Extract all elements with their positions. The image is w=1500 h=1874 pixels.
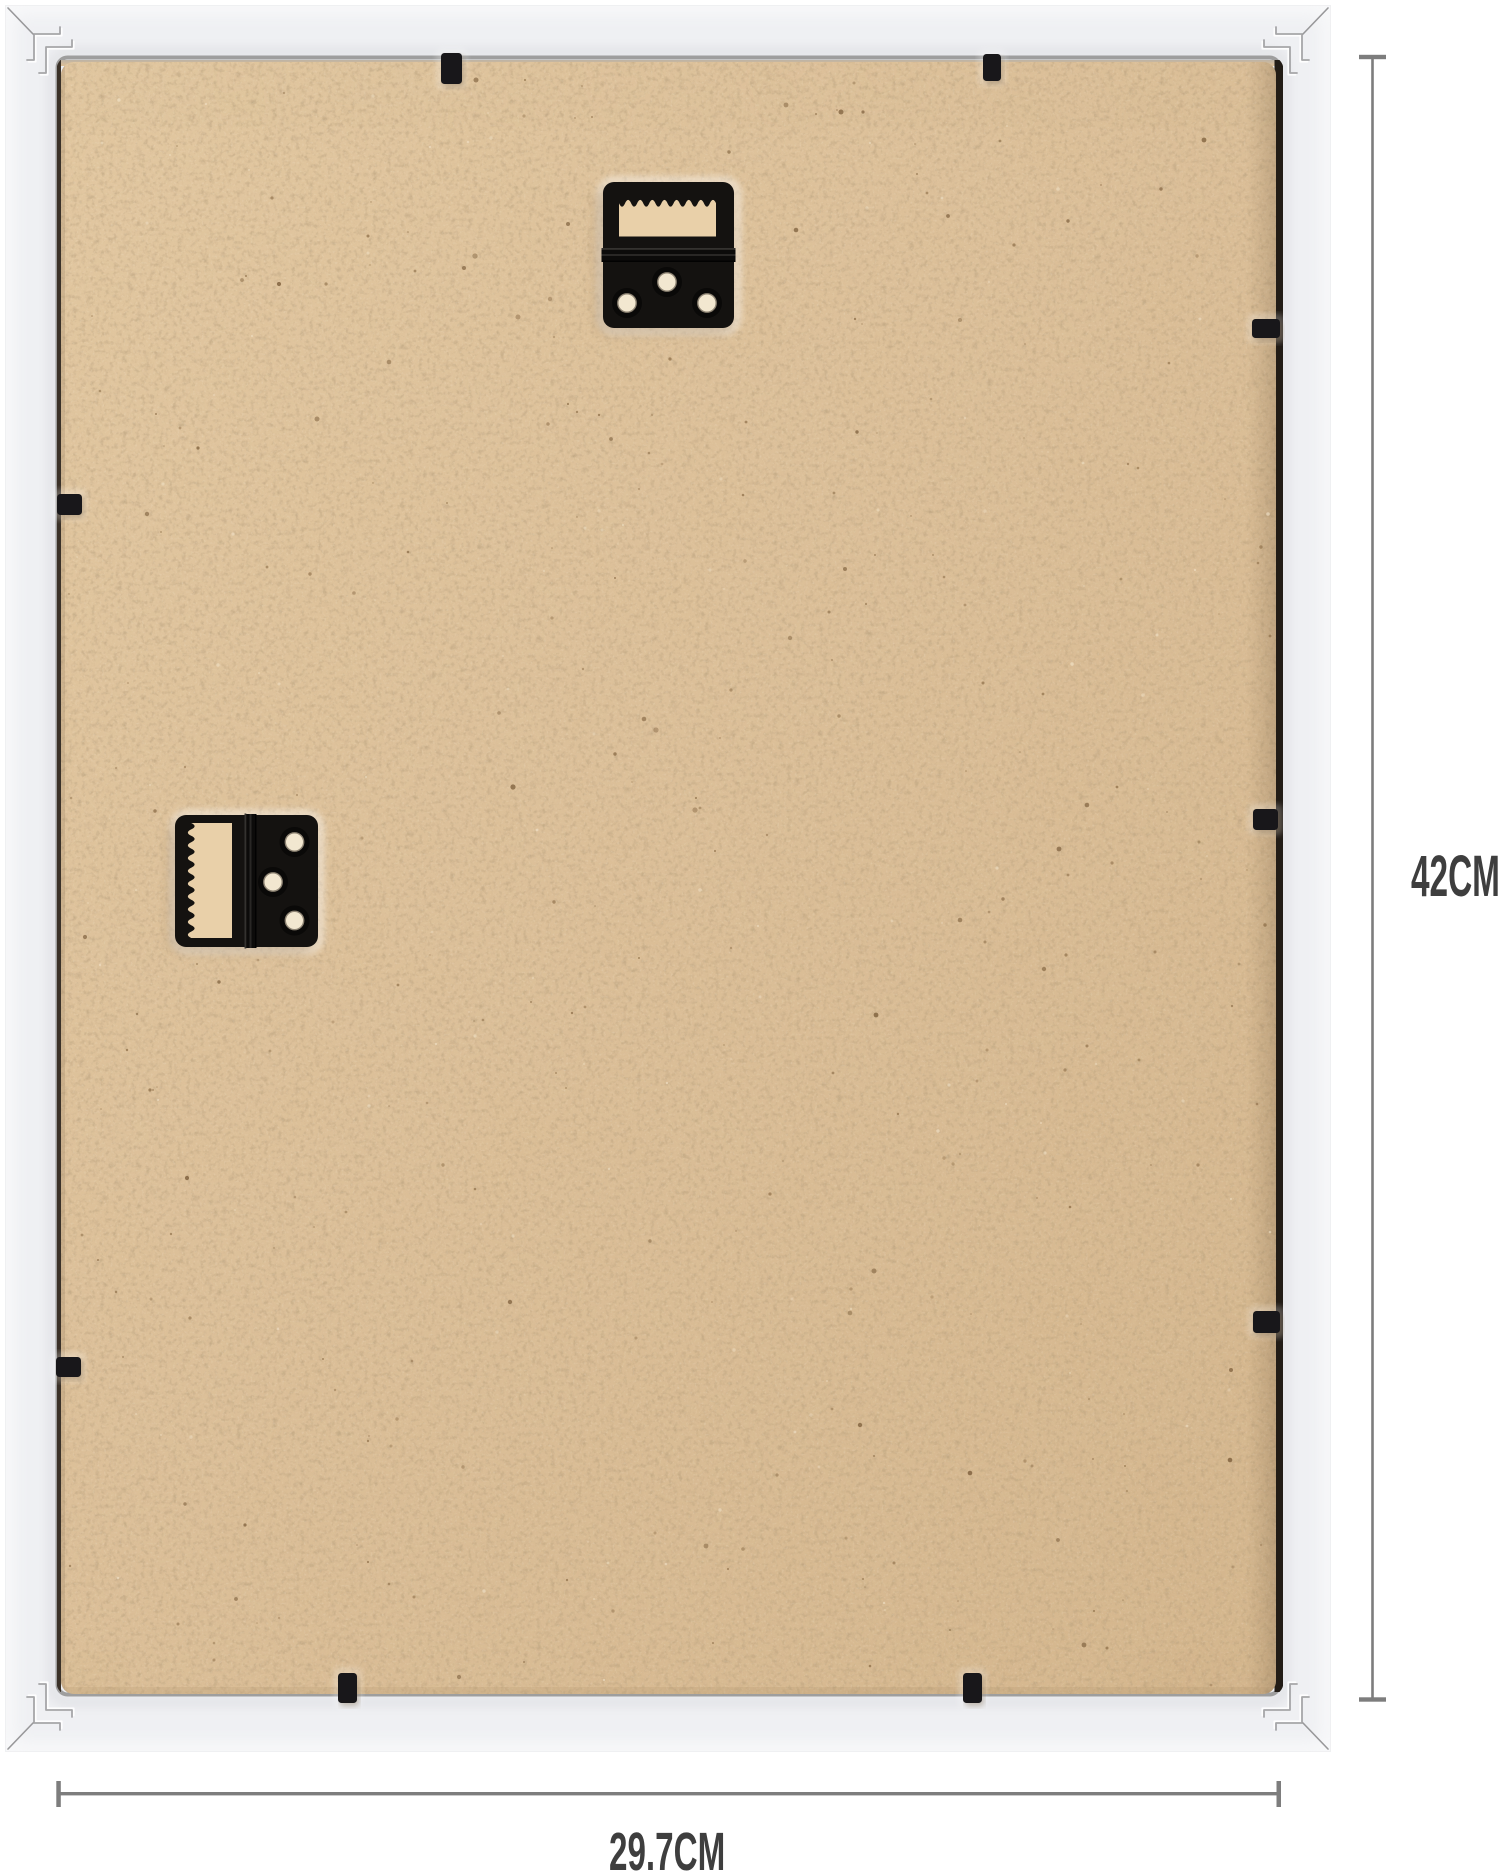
svg-text:42CM: 42CM xyxy=(1411,845,1500,910)
svg-text:29.7CM: 29.7CM xyxy=(609,1822,725,1874)
